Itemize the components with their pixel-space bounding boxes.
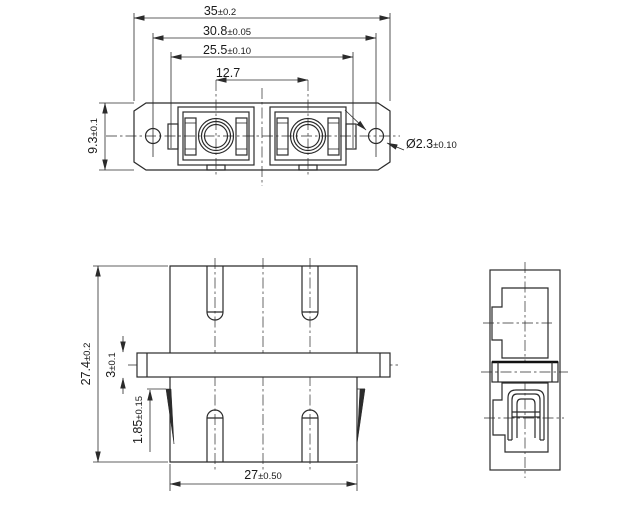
side-view: 27.4±0.2 3±0.1 1.85±0.15 27±0.50 (79, 258, 400, 491)
dim-body-depth-label: 27±0.50 (244, 468, 282, 482)
end-upper-cavity (492, 288, 548, 358)
dim-mounting-hole-spacing: 30.8±0.05 (153, 24, 376, 157)
technical-drawing: 35±0.2 30.8±0.05 25.5±0.10 12.7 9.3±0.1 … (0, 0, 633, 530)
right-spring-clip (357, 389, 365, 444)
dim-hole-spacing-label: 30.8±0.05 (203, 24, 251, 38)
end-u-clip (508, 390, 544, 440)
top-slots (207, 266, 318, 320)
dim-flange-thickness-label: 3±0.1 (104, 352, 118, 377)
bottom-slots (207, 410, 318, 462)
end-view (481, 262, 568, 478)
dim-port-pitch-label: 12.7 (216, 66, 240, 80)
drawing-canvas: 35±0.2 30.8±0.05 25.5±0.10 12.7 9.3±0.1 … (0, 0, 633, 530)
dim-clip-offset-label: 1.85±0.15 (131, 396, 145, 444)
dim-flange-thickness: 3±0.1 (104, 336, 123, 394)
right-latch-tab (346, 124, 356, 149)
dim-hole-diameter: Ø2.3±0.10 (345, 110, 457, 151)
dim-overall-width-label: 35±0.2 (204, 4, 236, 18)
front-view (106, 80, 400, 186)
dim-latch-spacing-label: 25.5±0.10 (203, 43, 251, 57)
mounting-flange (137, 353, 390, 377)
dim-port-pitch: 12.7 (216, 66, 308, 80)
left-latch-tab (168, 124, 178, 149)
dim-overall-width: 35±0.2 (134, 4, 390, 101)
dim-front-height-label: 9.3±0.1 (86, 118, 100, 154)
dim-overall-depth-label: 27.4±0.2 (79, 343, 93, 386)
dim-body-depth: 27±0.50 (170, 464, 357, 491)
dim-hole-diameter-label: Ø2.3±0.10 (406, 137, 457, 151)
dim-clip-offset: 1.85±0.15 (131, 390, 150, 452)
dim-front-height: 9.3±0.1 (86, 103, 134, 170)
